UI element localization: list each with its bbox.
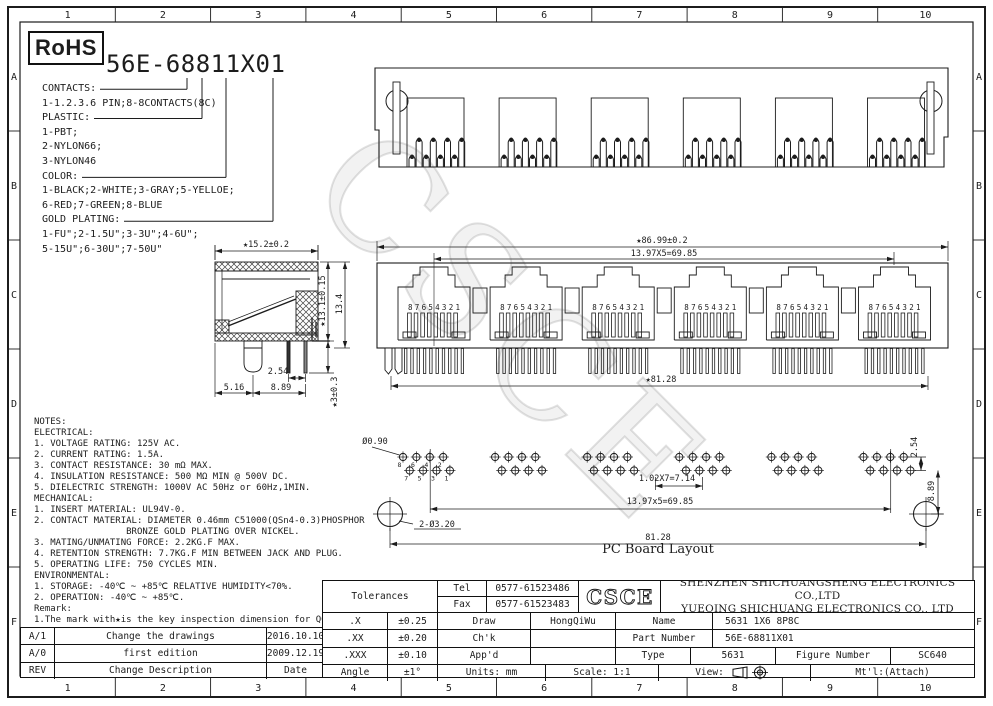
svg-text:8.89: 8.89: [271, 383, 291, 393]
svg-text:D: D: [11, 399, 17, 410]
svg-text:★81.28: ★81.28: [646, 375, 677, 385]
type-label: Type: [615, 648, 690, 664]
svg-text:CSCE: CSCE: [586, 585, 654, 609]
title-block: Tolerances Tel 0577-61523486 Fax 0577-61…: [322, 580, 975, 678]
svg-text:87654321: 87654321: [592, 303, 644, 312]
svg-text:2.54: 2.54: [268, 367, 288, 377]
svg-text:2: 2: [160, 10, 166, 21]
revision-table: A/1 Change the drawings 2016.10.10 A/0 f…: [20, 627, 325, 678]
tol-x-value: ±0.25: [387, 613, 437, 629]
company-line2: YUEQING SHICHUANG ELECTRONICS CO., LTD: [681, 603, 954, 612]
svg-text:F: F: [976, 617, 982, 628]
svg-text:1: 1: [65, 683, 71, 694]
svg-text:87654321: 87654321: [500, 303, 552, 312]
svg-text:8: 8: [732, 10, 738, 21]
fax-number: 0577-61523483: [486, 597, 578, 612]
rev-id: A/0: [21, 645, 54, 661]
svg-text:9: 9: [827, 683, 833, 694]
svg-text:3: 3: [255, 10, 261, 21]
top-view: [375, 68, 948, 167]
svg-text:6: 6: [541, 683, 547, 694]
svg-text:8.89: 8.89: [927, 481, 937, 501]
svg-text:1: 1: [444, 475, 448, 483]
chk-label: Ch'k: [437, 630, 530, 646]
svg-text:4: 4: [424, 461, 428, 469]
svg-text:4: 4: [351, 683, 357, 694]
svg-text:E: E: [976, 508, 982, 519]
rev-id: REV: [21, 663, 54, 679]
pcb-layout-caption: PC Board Layout: [577, 542, 739, 557]
svg-text:4: 4: [351, 10, 357, 21]
svg-text:87654321: 87654321: [869, 303, 921, 312]
svg-text:13.4: 13.4: [335, 294, 345, 314]
appd-label: App'd: [437, 648, 530, 664]
svg-text:★13.1±0.15: ★13.1±0.15: [318, 275, 328, 326]
draw-name: HongQiWu: [530, 613, 615, 629]
svg-text:6: 6: [411, 461, 415, 469]
company-logo: CSCE: [578, 581, 660, 612]
tel-fax-block: Tel 0577-61523486 Fax 0577-61523483: [437, 581, 578, 612]
svg-text:1: 1: [65, 10, 71, 21]
svg-text:★15.2±0.2: ★15.2±0.2: [243, 240, 289, 250]
scale: Scale: 1:1: [545, 665, 658, 681]
company-line1: SHENZHEN SHICHUANGSHENG ELECTRONICS CO.,…: [661, 581, 974, 603]
rev-date: Date: [266, 663, 324, 679]
svg-text:2-Ø3.20: 2-Ø3.20: [419, 519, 455, 530]
rev-date: 2009.12.19: [266, 645, 324, 661]
view-label: View:: [695, 667, 724, 678]
svg-text:8: 8: [732, 683, 738, 694]
svg-text:B: B: [11, 181, 17, 192]
part-number-header: 56E-68811X01: [106, 50, 285, 78]
tol-xxx-label: .XXX: [323, 648, 387, 664]
view-cell: View:: [658, 665, 810, 681]
company-name: SHENZHEN SHICHUANGSHENG ELECTRONICS CO.,…: [660, 581, 974, 612]
part-number-value: 56E-68811X01: [712, 630, 974, 646]
name-label: Name: [615, 613, 712, 629]
svg-text:★3±0.3: ★3±0.3: [330, 377, 340, 408]
front-view: 8765432187654321876543218765432187654321…: [377, 236, 948, 390]
svg-text:1.02X7=7.14: 1.02X7=7.14: [639, 474, 695, 484]
svg-text:5: 5: [418, 475, 422, 483]
rohs-mark: RoHS: [28, 31, 104, 65]
ordering-options: CONTACTS: 1-1.2.3.6 PIN;8-8CONTACTS(8C) …: [42, 82, 235, 257]
product-name: 5631 1X6 8P8C: [712, 613, 974, 629]
svg-text:B: B: [976, 181, 982, 192]
svg-text:9: 9: [827, 10, 833, 21]
material: Mt'l:(Attach): [810, 665, 974, 681]
rev-date: 2016.10.10: [266, 628, 324, 644]
fax-label: Fax: [438, 597, 486, 612]
type-value: 5631: [690, 648, 775, 664]
tol-xx-label: .XX: [323, 630, 387, 646]
rev-description: Change Description: [54, 663, 266, 679]
pcb-layout: 87654321Ø0.9013.97x5=69.851.02X7=7.142-Ø…: [362, 436, 944, 548]
rev-id: A/1: [21, 628, 54, 644]
svg-text:A: A: [976, 72, 982, 83]
svg-text:D: D: [976, 399, 982, 410]
svg-text:3: 3: [255, 683, 261, 694]
revision-header-row: REV Change Description Date: [21, 662, 324, 679]
svg-text:★86.99±0.2: ★86.99±0.2: [636, 236, 687, 246]
svg-text:3: 3: [431, 475, 435, 483]
figure-number-value: SC640: [890, 648, 974, 664]
svg-text:87654321: 87654321: [684, 303, 736, 312]
part-number-label: Part Number: [615, 630, 712, 646]
tol-xxx-value: ±0.10: [387, 648, 437, 664]
svg-text:8: 8: [398, 461, 402, 469]
drawing-sheet: 1122334455667788991010AABBCCDDEEFF★15.2±…: [0, 0, 993, 706]
svg-text:7: 7: [636, 10, 642, 21]
svg-text:7: 7: [636, 683, 642, 694]
svg-text:10: 10: [919, 10, 931, 21]
svg-text:C: C: [976, 290, 982, 301]
chk-name: [530, 630, 615, 646]
csce-logo-icon: CSCE: [581, 583, 659, 611]
svg-text:C: C: [11, 290, 17, 301]
notes-block: NOTES: ELECTRICAL: 1. VOLTAGE RATING: 12…: [34, 417, 365, 626]
tol-xx-value: ±0.20: [387, 630, 437, 646]
svg-text:2: 2: [160, 683, 166, 694]
svg-text:10: 10: [919, 683, 931, 694]
projection-view-icon: [730, 665, 774, 680]
revision-row: A/0 first edition 2009.12.19: [21, 644, 324, 661]
figure-number-label: Figure Number: [775, 648, 890, 664]
tol-angle-label: Angle: [323, 665, 387, 681]
side-view: ★15.2±0.2★13.1±0.1513.42.545.168.89★3±0.…: [215, 240, 350, 407]
tel-label: Tel: [438, 581, 486, 596]
svg-text:87654321: 87654321: [776, 303, 828, 312]
tol-x-label: .X: [323, 613, 387, 629]
tolerances-header: Tolerances: [323, 581, 437, 612]
svg-text:5: 5: [446, 683, 452, 694]
tel-number: 0577-61523486: [486, 581, 578, 596]
svg-text:6: 6: [541, 10, 547, 21]
rev-description: Change the drawings: [54, 628, 266, 644]
svg-text:Ø0.90: Ø0.90: [362, 436, 388, 447]
units: Units: mm: [437, 665, 545, 681]
svg-text:F: F: [11, 617, 17, 628]
draw-label: Draw: [437, 613, 530, 629]
tol-angle-value: ±1°: [387, 665, 437, 681]
svg-text:2: 2: [438, 461, 442, 469]
revision-row: A/1 Change the drawings 2016.10.10: [21, 628, 324, 644]
svg-text:5: 5: [446, 10, 452, 21]
rev-description: first edition: [54, 645, 266, 661]
svg-text:2.54: 2.54: [910, 437, 920, 457]
svg-text:7: 7: [404, 475, 408, 483]
svg-text:A: A: [11, 72, 17, 83]
appd-name: [530, 648, 615, 664]
svg-text:E: E: [11, 508, 17, 519]
svg-text:5.16: 5.16: [224, 383, 244, 393]
svg-text:13.97x5=69.85: 13.97x5=69.85: [627, 497, 694, 507]
svg-text:13.97X5=69.85: 13.97X5=69.85: [631, 249, 698, 259]
